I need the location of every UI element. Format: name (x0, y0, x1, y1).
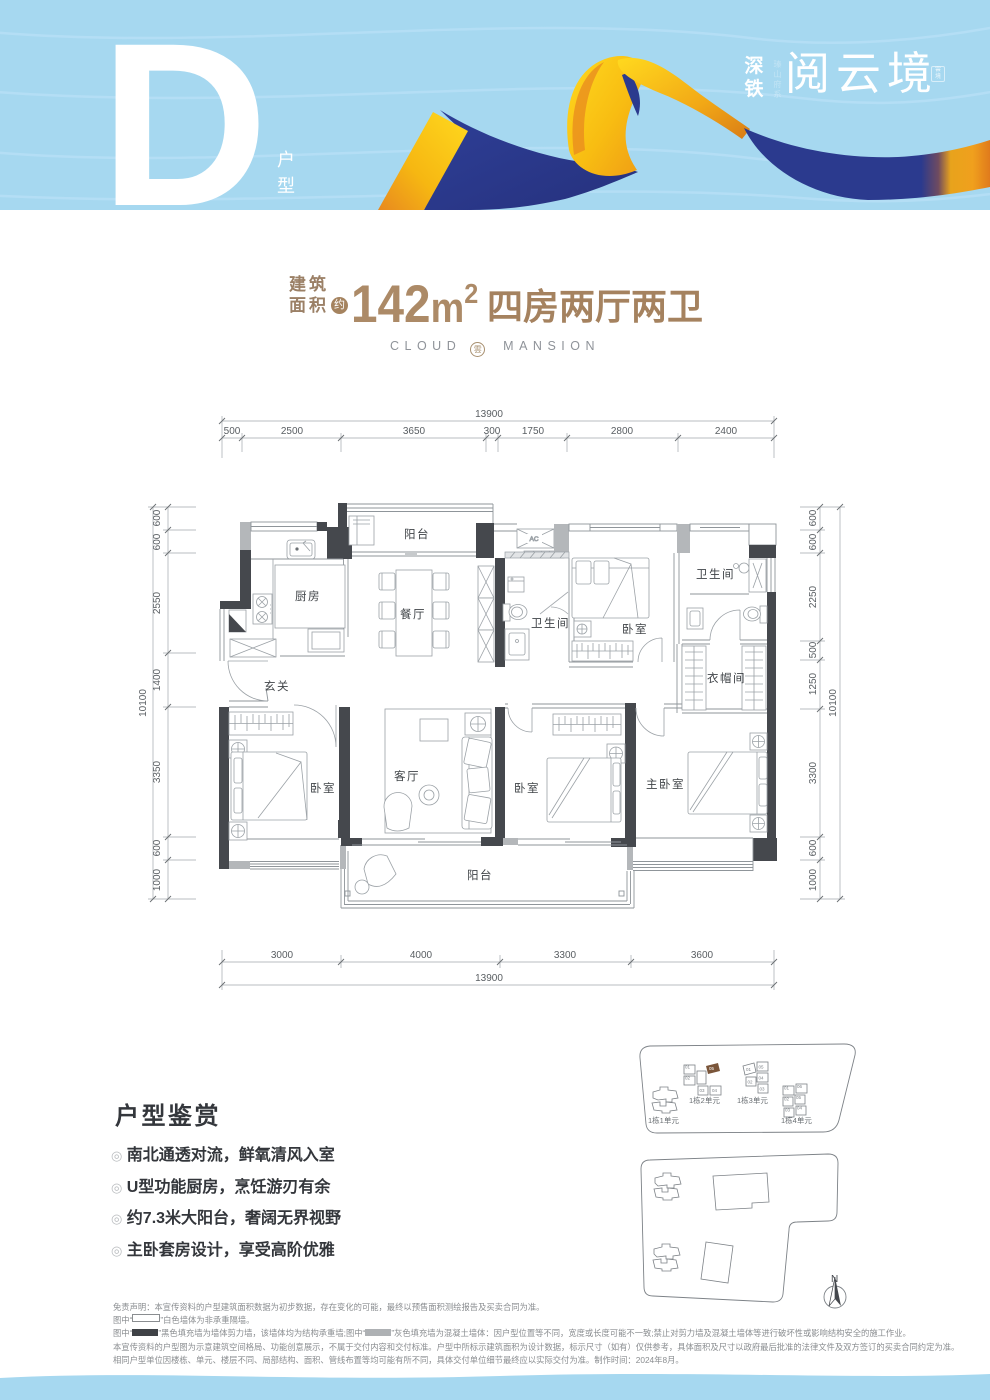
svg-text:06: 06 (797, 1084, 803, 1089)
svg-text:1000: 1000 (152, 868, 163, 891)
svg-text:卫生间: 卫生间 (531, 616, 570, 630)
svg-text:600: 600 (152, 839, 163, 856)
svg-text:600: 600 (152, 533, 163, 550)
svg-text:13900: 13900 (475, 409, 503, 420)
svg-text:1400: 1400 (152, 668, 163, 691)
svg-text:1栋4单元: 1栋4单元 (781, 1115, 812, 1125)
svg-text:04: 04 (797, 1106, 803, 1111)
svg-text:3300: 3300 (554, 950, 577, 961)
svg-text:02: 02 (748, 1080, 754, 1085)
svg-text:2550: 2550 (152, 591, 163, 614)
svg-text:2400: 2400 (715, 426, 738, 437)
svg-text:03: 03 (785, 1108, 791, 1113)
svg-text:01: 01 (746, 1067, 752, 1072)
svg-text:1栋1单元: 1栋1单元 (648, 1115, 679, 1125)
svg-text:500: 500 (808, 641, 819, 658)
svg-text:卧室: 卧室 (310, 781, 336, 795)
svg-text:3650: 3650 (403, 426, 426, 437)
svg-text:餐厅: 餐厅 (400, 607, 426, 621)
svg-text:AC: AC (529, 536, 538, 543)
svg-text:1750: 1750 (522, 426, 545, 437)
svg-text:02: 02 (784, 1097, 790, 1102)
svg-text:阳台: 阳台 (404, 527, 430, 541)
svg-text:3000: 3000 (271, 950, 294, 961)
svg-text:1栋2单元: 1栋2单元 (689, 1095, 720, 1105)
svg-text:600: 600 (808, 509, 819, 526)
svg-text:13900: 13900 (475, 973, 503, 984)
svg-text:05: 05 (796, 1095, 802, 1100)
svg-text:2500: 2500 (281, 426, 304, 437)
svg-text:3600: 3600 (691, 950, 714, 961)
svg-text:500: 500 (224, 426, 241, 437)
svg-text:厨房: 厨房 (295, 590, 321, 603)
svg-text:05: 05 (709, 1066, 715, 1071)
svg-text:3350: 3350 (152, 760, 163, 783)
svg-text:卧室: 卧室 (514, 781, 540, 795)
svg-text:主卧室: 主卧室 (646, 777, 685, 791)
svg-text:03: 03 (760, 1087, 766, 1092)
svg-text:阳台: 阳台 (467, 868, 493, 882)
svg-text:600: 600 (808, 839, 819, 856)
svg-text:01: 01 (784, 1086, 790, 1091)
svg-text:衣帽间: 衣帽间 (707, 671, 746, 685)
svg-text:1250: 1250 (808, 672, 819, 695)
svg-text:04: 04 (712, 1088, 718, 1093)
svg-text:玄关: 玄关 (264, 679, 290, 693)
svg-text:02: 02 (685, 1076, 691, 1081)
svg-text:03: 03 (700, 1088, 706, 1093)
svg-text:01: 01 (685, 1065, 691, 1070)
svg-text:卧室: 卧室 (622, 622, 648, 636)
svg-text:05: 05 (759, 1065, 765, 1070)
svg-text:600: 600 (808, 533, 819, 550)
svg-text:10100: 10100 (828, 689, 839, 717)
svg-text:300: 300 (484, 426, 501, 437)
svg-text:3300: 3300 (808, 761, 819, 784)
svg-text:2800: 2800 (611, 426, 634, 437)
svg-text:1000: 1000 (808, 868, 819, 891)
svg-text:04: 04 (759, 1076, 765, 1081)
svg-text:10100: 10100 (138, 689, 149, 717)
svg-text:客厅: 客厅 (394, 769, 420, 783)
svg-text:4000: 4000 (410, 950, 433, 961)
svg-text:1栋3单元: 1栋3单元 (737, 1095, 768, 1105)
svg-text:600: 600 (152, 509, 163, 526)
svg-text:2250: 2250 (808, 585, 819, 608)
svg-text:卫生间: 卫生间 (696, 567, 735, 581)
